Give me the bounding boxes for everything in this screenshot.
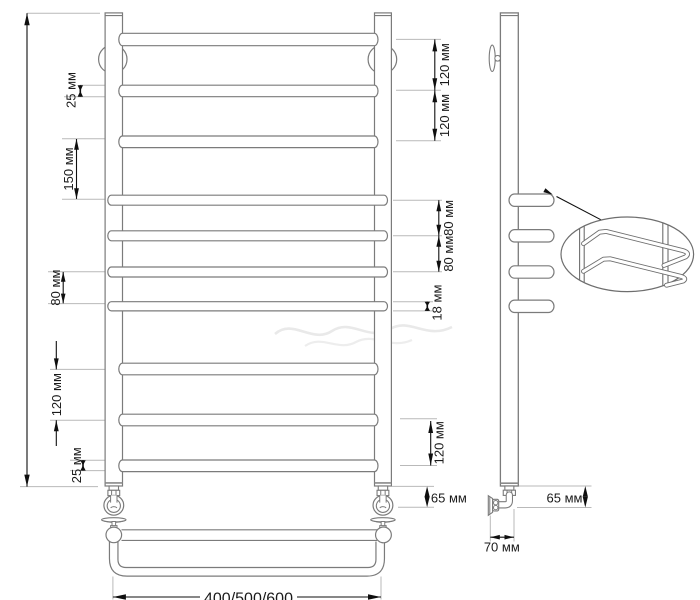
svg-text:120 мм: 120 мм [49, 373, 64, 416]
svg-text:120 мм: 120 мм [437, 94, 452, 137]
svg-text:80 мм: 80 мм [441, 236, 456, 272]
svg-text:80 мм: 80 мм [48, 270, 63, 306]
svg-text:25 мм: 25 мм [63, 72, 78, 108]
svg-text:65 мм: 65 мм [431, 490, 467, 505]
svg-text:18 мм: 18 мм [430, 285, 445, 321]
svg-text:65 мм: 65 мм [547, 490, 583, 505]
svg-text:150 мм: 150 мм [61, 147, 76, 190]
svg-text:120 мм: 120 мм [437, 43, 452, 86]
svg-text:25 мм: 25 мм [69, 447, 84, 483]
svg-text:120 мм: 120 мм [432, 421, 447, 464]
svg-text:70 мм: 70 мм [484, 540, 520, 555]
svg-text:400/500/600: 400/500/600 [204, 591, 293, 600]
svg-text:80 мм: 80 мм [441, 200, 456, 236]
